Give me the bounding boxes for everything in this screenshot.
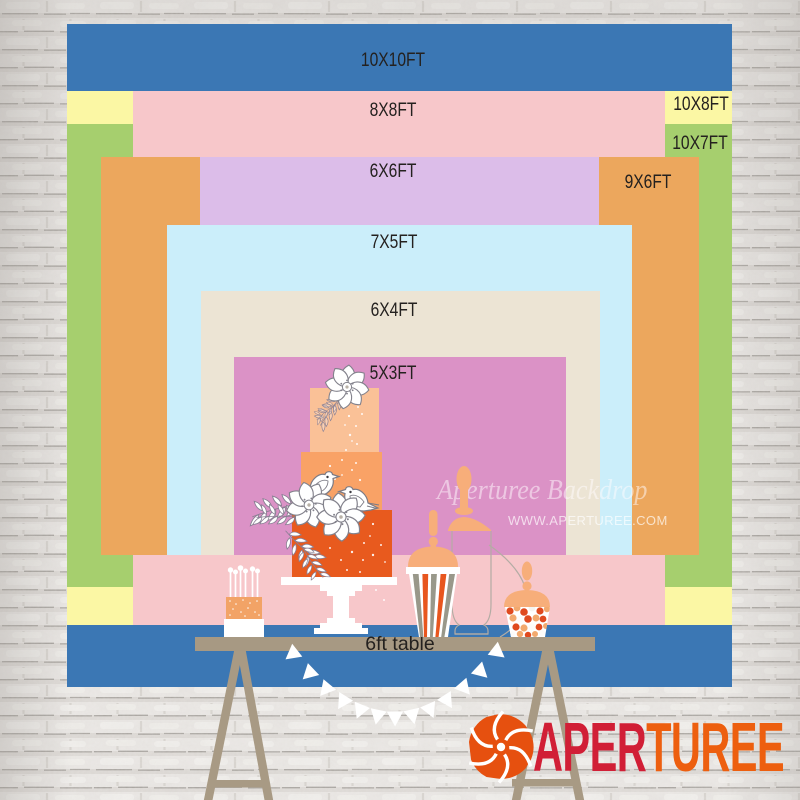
- svg-text:APERTUREE: APERTUREE: [533, 709, 784, 787]
